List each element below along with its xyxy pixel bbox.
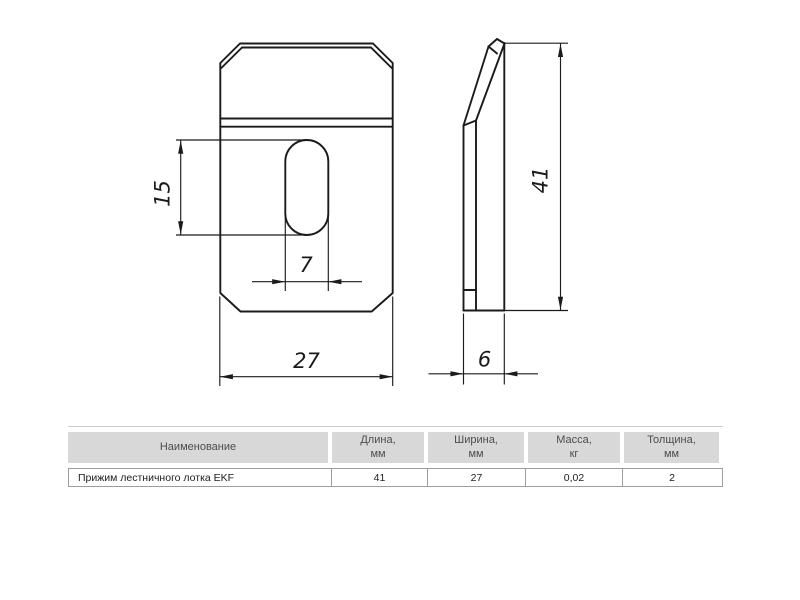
- side-tab-inner-edge: [476, 44, 505, 121]
- dim-text-profile-depth: 6: [478, 348, 491, 372]
- dim-plate-height: 41: [504, 43, 568, 310]
- header-name-label: Наименование: [160, 441, 236, 455]
- header-cell-length: Длина, мм: [332, 432, 424, 463]
- row-cell-width: 27: [427, 469, 525, 486]
- front-slot: [285, 140, 328, 235]
- header-thickness-label: Толщина,: [647, 434, 696, 448]
- dim-plate-width: 27: [220, 297, 393, 387]
- header-mass-label: Масса,: [556, 434, 592, 448]
- side-tab-chamfer-tick: [489, 47, 498, 54]
- table-row: Прижим лестничного лотка EKF 41 27 0,02 …: [68, 468, 723, 487]
- side-tab-outer-edge: [464, 47, 489, 126]
- header-cell-name: Наименование: [68, 432, 328, 463]
- header-cell-mass: Масса, кг: [528, 432, 620, 463]
- row-cell-name: Прижим лестничного лотка EKF: [69, 469, 331, 486]
- dim-text-plate-width: 27: [293, 349, 320, 373]
- dim-text-slot-width: 7: [299, 253, 313, 277]
- dim-slot-height: 15: [151, 140, 308, 235]
- header-width-label: Ширина,: [454, 434, 498, 448]
- technical-drawing: 15 7 27: [0, 0, 800, 430]
- header-length-unit: мм: [370, 448, 385, 462]
- drawing-sheet: 15 7 27: [0, 0, 800, 600]
- dim-text-slot-height: 15: [151, 180, 175, 207]
- header-width-unit: мм: [468, 448, 483, 462]
- header-cell-width: Ширина, мм: [428, 432, 524, 463]
- side-tab-end-edge: [497, 39, 505, 44]
- dim-text-plate-height: 41: [529, 167, 553, 194]
- row-cell-thickness: 2: [622, 469, 721, 486]
- side-tab-end-chamfer: [489, 39, 498, 47]
- header-mass-unit: кг: [570, 448, 579, 462]
- spec-table: Наименование Длина, мм Ширина, мм Масса,…: [68, 426, 723, 487]
- spec-table-header: Наименование Длина, мм Ширина, мм Масса,…: [68, 432, 723, 463]
- dim-profile-depth: 6: [429, 314, 539, 385]
- dim-slot-width: 7: [252, 214, 362, 291]
- header-cell-thickness: Толщина, мм: [624, 432, 719, 463]
- header-thickness-unit: мм: [664, 448, 679, 462]
- row-cell-mass: 0,02: [525, 469, 622, 486]
- header-length-label: Длина,: [360, 434, 395, 448]
- row-cell-length: 41: [331, 469, 427, 486]
- spec-table-top-border: [68, 426, 723, 427]
- side-view: [464, 39, 505, 311]
